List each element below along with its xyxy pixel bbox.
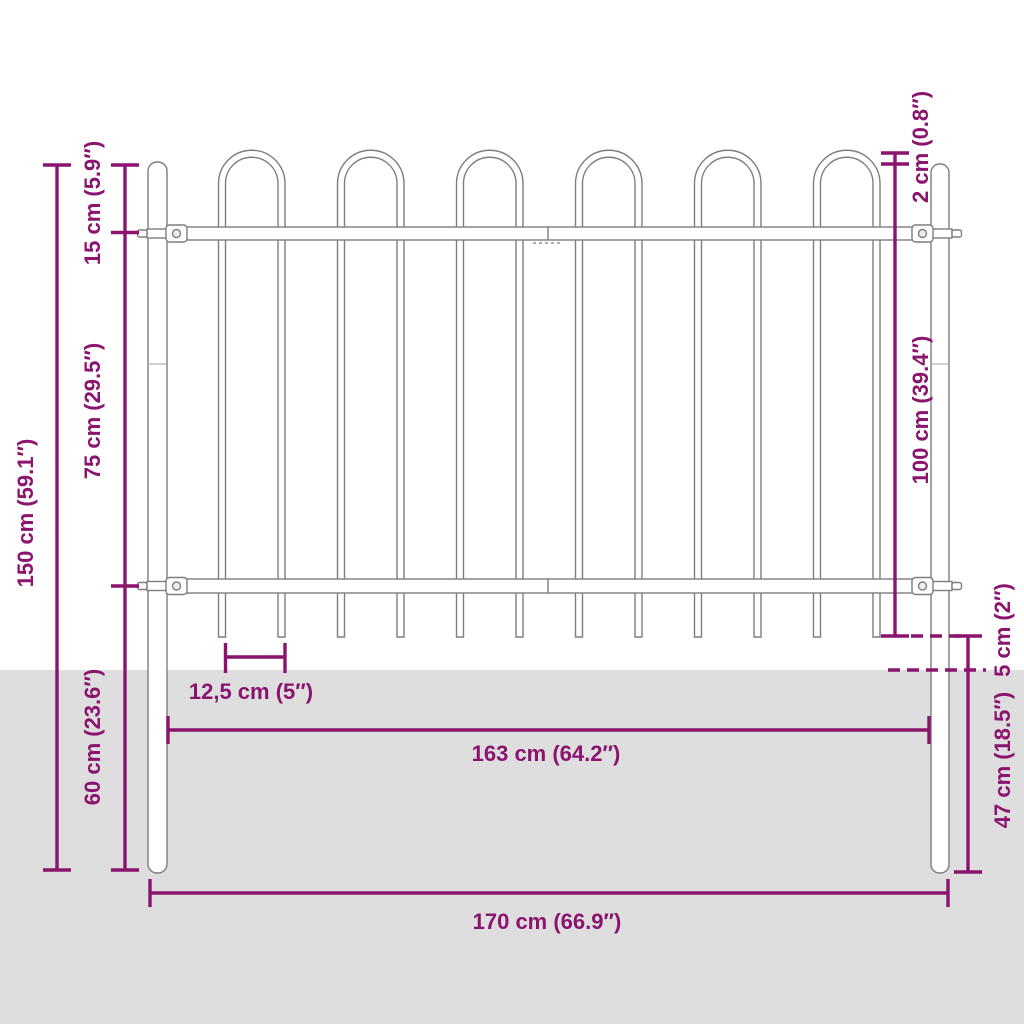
clamp-bolt [952, 583, 962, 590]
dim-label-hoop-top-offset: 2 cm (0.8″) [908, 91, 933, 203]
clamp-bolt [952, 230, 962, 237]
dim-label-ground-clearance: 5 cm (2″) [990, 583, 1015, 677]
dim-label-bottom-section-height: 60 cm (23.6″) [80, 669, 105, 806]
left-post [148, 162, 167, 873]
clamp-plate [932, 582, 952, 591]
right-post [931, 164, 949, 873]
dim-label-total-width: 170 cm (66.9″) [473, 909, 622, 934]
clamp-screw [173, 230, 181, 238]
clamp-plate [147, 582, 167, 591]
dim-label-top-section-height: 15 cm (5.9″) [80, 141, 105, 265]
dim-label-bar-spacing: 12,5 cm (5″) [189, 679, 313, 704]
clamp-screw [919, 230, 927, 238]
diagram-canvas: 150 cm (59.1″) 15 cm (5.9″) 75 cm (29.5″… [0, 0, 1024, 1024]
bottom-rail [167, 579, 932, 593]
dim-label-panel-width: 163 cm (64.2″) [472, 741, 621, 766]
clamp-plate [932, 229, 952, 238]
clamp-screw [173, 582, 181, 590]
fence-dimension-diagram-page: 150 cm (59.1″) 15 cm (5.9″) 75 cm (29.5″… [0, 0, 1024, 1024]
clamp-plate [147, 229, 167, 238]
dim-label-mid-section-height: 75 cm (29.5″) [80, 343, 105, 480]
clamp-screw [919, 582, 927, 590]
top-rail [167, 227, 932, 240]
dim-label-below-ground-depth: 47 cm (18.5″) [990, 692, 1015, 829]
dim-label-total-height: 150 cm (59.1″) [13, 439, 38, 588]
dim-label-panel-height: 100 cm (39.4″) [908, 336, 933, 485]
